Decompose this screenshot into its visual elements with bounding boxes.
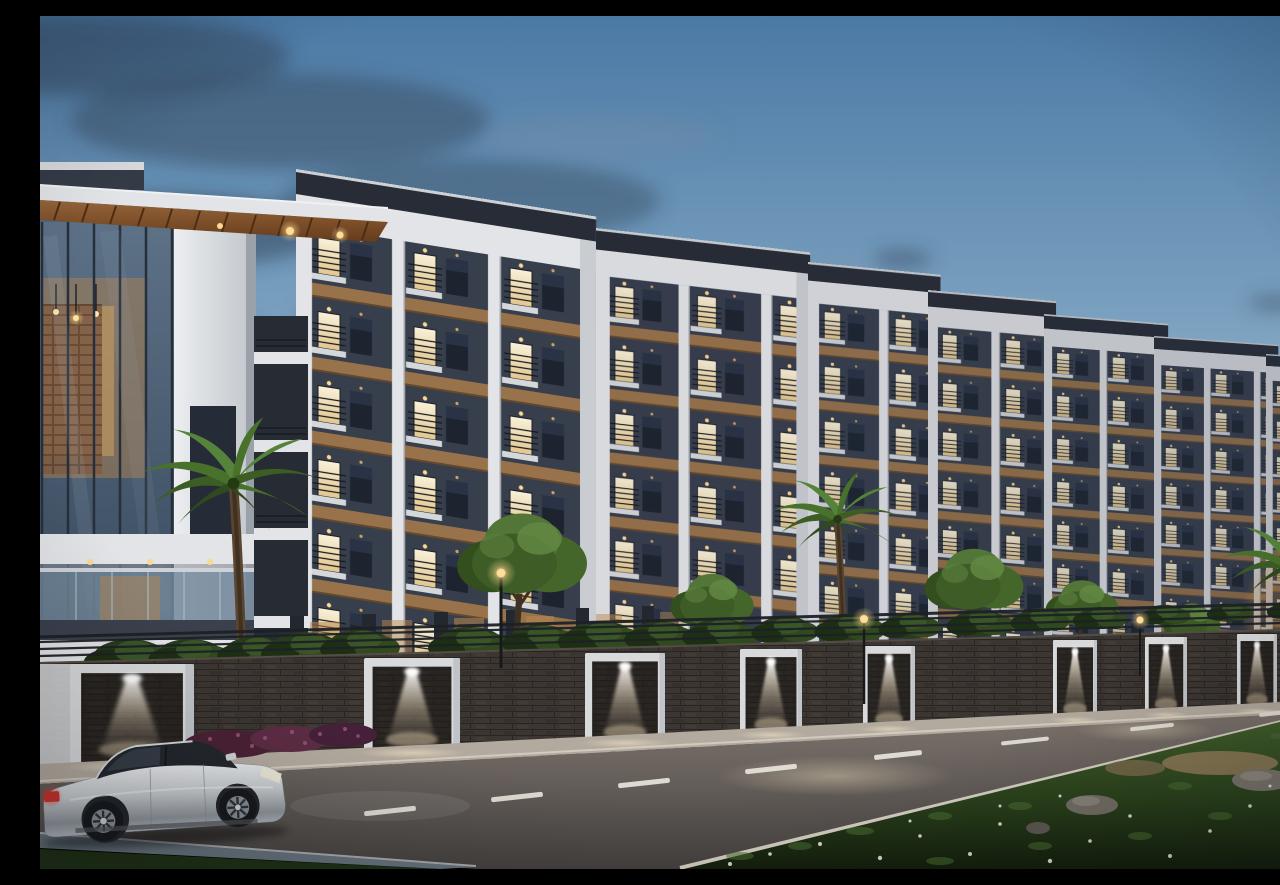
architectural-render (40, 16, 1280, 869)
vignette (40, 16, 1280, 869)
